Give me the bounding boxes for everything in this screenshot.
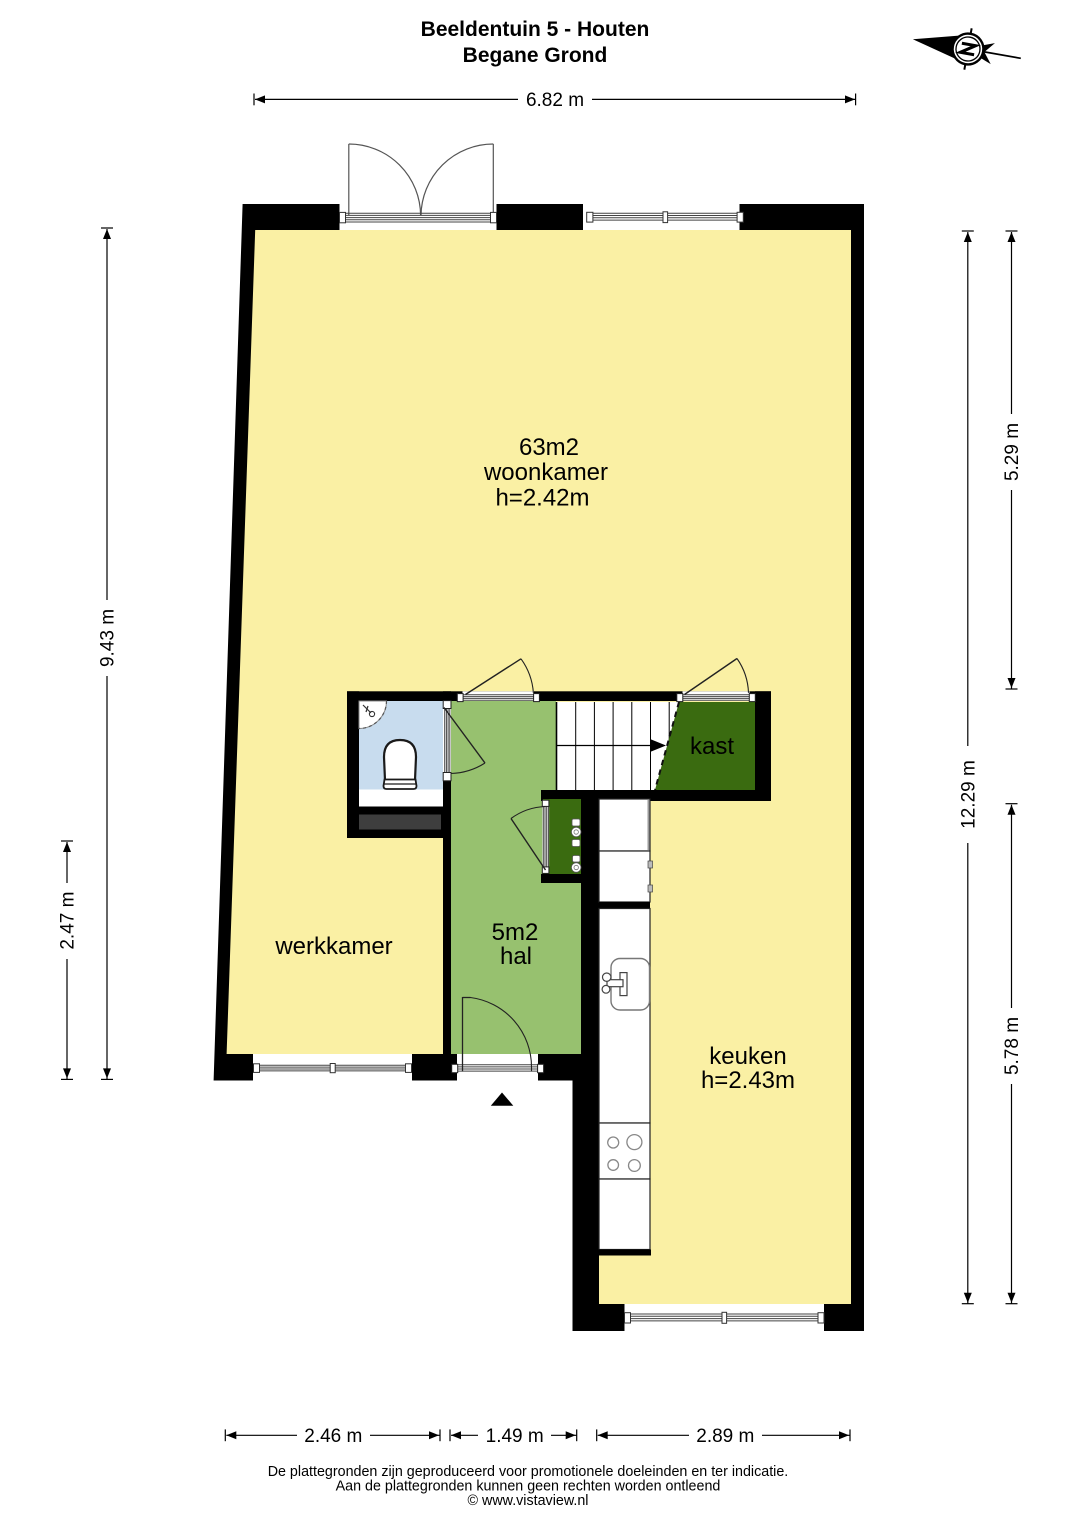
svg-text:werkkamer: werkkamer [274, 933, 392, 960]
svg-text:© www.vistaview.nl: © www.vistaview.nl [468, 1493, 589, 1509]
svg-text:2.46 m: 2.46 m [304, 1426, 362, 1447]
svg-text:12.29 m: 12.29 m [958, 760, 979, 829]
svg-text:1.49 m: 1.49 m [486, 1426, 544, 1447]
svg-text:hal: hal [500, 943, 532, 970]
svg-text:5m2: 5m2 [492, 919, 539, 946]
svg-text:h=2.42m: h=2.42m [495, 485, 589, 512]
svg-text:63m2: 63m2 [519, 434, 579, 461]
svg-text:Begane Grond: Begane Grond [463, 44, 608, 67]
svg-text:5.29 m: 5.29 m [1002, 423, 1023, 481]
svg-text:h=2.43m: h=2.43m [701, 1067, 795, 1094]
svg-text:5.78 m: 5.78 m [1002, 1017, 1023, 1075]
svg-text:2.47 m: 2.47 m [58, 892, 79, 950]
svg-text:9.43 m: 9.43 m [98, 609, 119, 667]
svg-text:6.82 m: 6.82 m [526, 90, 584, 111]
svg-text:kast: kast [690, 733, 734, 760]
svg-text:2.89 m: 2.89 m [696, 1426, 754, 1447]
svg-text:keuken: keuken [709, 1043, 786, 1070]
svg-text:Beeldentuin 5 - Houten: Beeldentuin 5 - Houten [421, 18, 650, 41]
svg-text:woonkamer: woonkamer [483, 459, 608, 486]
